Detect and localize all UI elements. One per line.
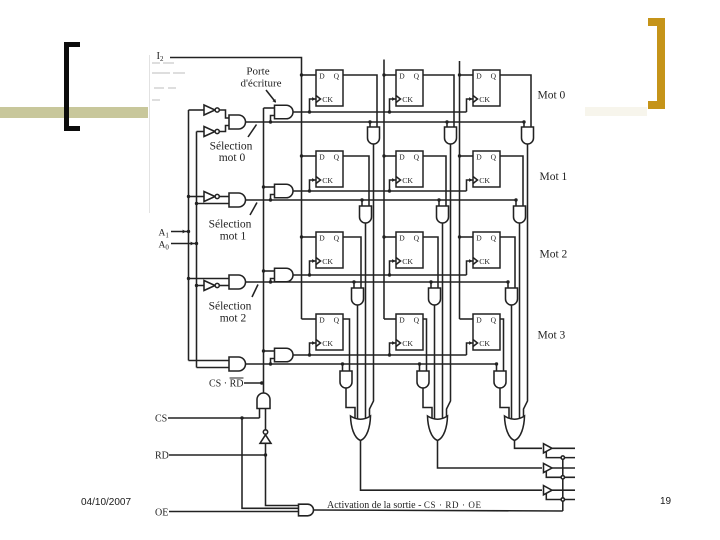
- svg-text:Q: Q: [414, 153, 420, 162]
- svg-text:D: D: [399, 153, 405, 162]
- svg-text:CK: CK: [479, 176, 490, 185]
- svg-text:Q: Q: [334, 153, 340, 162]
- svg-text:mot 2: mot 2: [220, 313, 247, 325]
- svg-text:CK: CK: [402, 176, 413, 185]
- svg-text:Mot 2: Mot 2: [540, 249, 568, 261]
- svg-text:CS · RD: CS · RD: [209, 379, 243, 390]
- svg-text:A0: A0: [159, 241, 170, 252]
- svg-text:D: D: [399, 72, 405, 81]
- svg-text:Sélection: Sélection: [210, 141, 253, 153]
- svg-text:Q: Q: [414, 316, 420, 325]
- svg-text:D: D: [399, 316, 405, 325]
- svg-text:D: D: [476, 72, 482, 81]
- svg-text:Q: Q: [491, 316, 497, 325]
- svg-text:D: D: [319, 72, 325, 81]
- svg-text:OE: OE: [155, 508, 168, 519]
- svg-text:CK: CK: [479, 95, 490, 104]
- svg-text:D: D: [319, 234, 325, 243]
- svg-text:Mot 0: Mot 0: [538, 90, 566, 102]
- svg-text:CK: CK: [322, 257, 333, 266]
- svg-text:Q: Q: [491, 72, 497, 81]
- svg-text:CK: CK: [322, 95, 333, 104]
- svg-text:D: D: [399, 234, 405, 243]
- svg-text:Q: Q: [491, 234, 497, 243]
- svg-text:CK: CK: [322, 176, 333, 185]
- svg-text:CK: CK: [479, 257, 490, 266]
- svg-text:Q: Q: [414, 72, 420, 81]
- svg-text:mot 1: mot 1: [220, 231, 247, 243]
- svg-text:CK: CK: [479, 339, 490, 348]
- svg-text:Q: Q: [334, 234, 340, 243]
- svg-text:Activation de la sortie - CS ·: Activation de la sortie - CS · RD · OE: [327, 500, 482, 511]
- svg-text:Q: Q: [334, 72, 340, 81]
- svg-text:D: D: [476, 153, 482, 162]
- svg-text:I2: I2: [157, 51, 165, 63]
- svg-text:Porte: Porte: [246, 66, 269, 78]
- svg-text:D: D: [476, 316, 482, 325]
- svg-text:D: D: [319, 153, 325, 162]
- svg-text:CS: CS: [155, 414, 167, 425]
- svg-text:Mot 1: Mot 1: [540, 171, 568, 183]
- svg-text:CK: CK: [402, 339, 413, 348]
- svg-text:Sélection: Sélection: [209, 219, 252, 231]
- svg-text:Q: Q: [414, 234, 420, 243]
- svg-text:Q: Q: [491, 153, 497, 162]
- svg-text:CK: CK: [402, 257, 413, 266]
- svg-text:D: D: [319, 316, 325, 325]
- svg-text:Sélection: Sélection: [209, 301, 252, 313]
- svg-text:RD: RD: [155, 451, 169, 462]
- svg-text:D: D: [476, 234, 482, 243]
- svg-text:Mot 3: Mot 3: [538, 330, 566, 342]
- svg-text:mot 0: mot 0: [219, 152, 246, 164]
- svg-text:CK: CK: [322, 339, 333, 348]
- svg-text:CK: CK: [402, 95, 413, 104]
- svg-text:d'écriture: d'écriture: [240, 78, 281, 90]
- svg-text:A1: A1: [159, 229, 170, 240]
- svg-text:Q: Q: [334, 316, 340, 325]
